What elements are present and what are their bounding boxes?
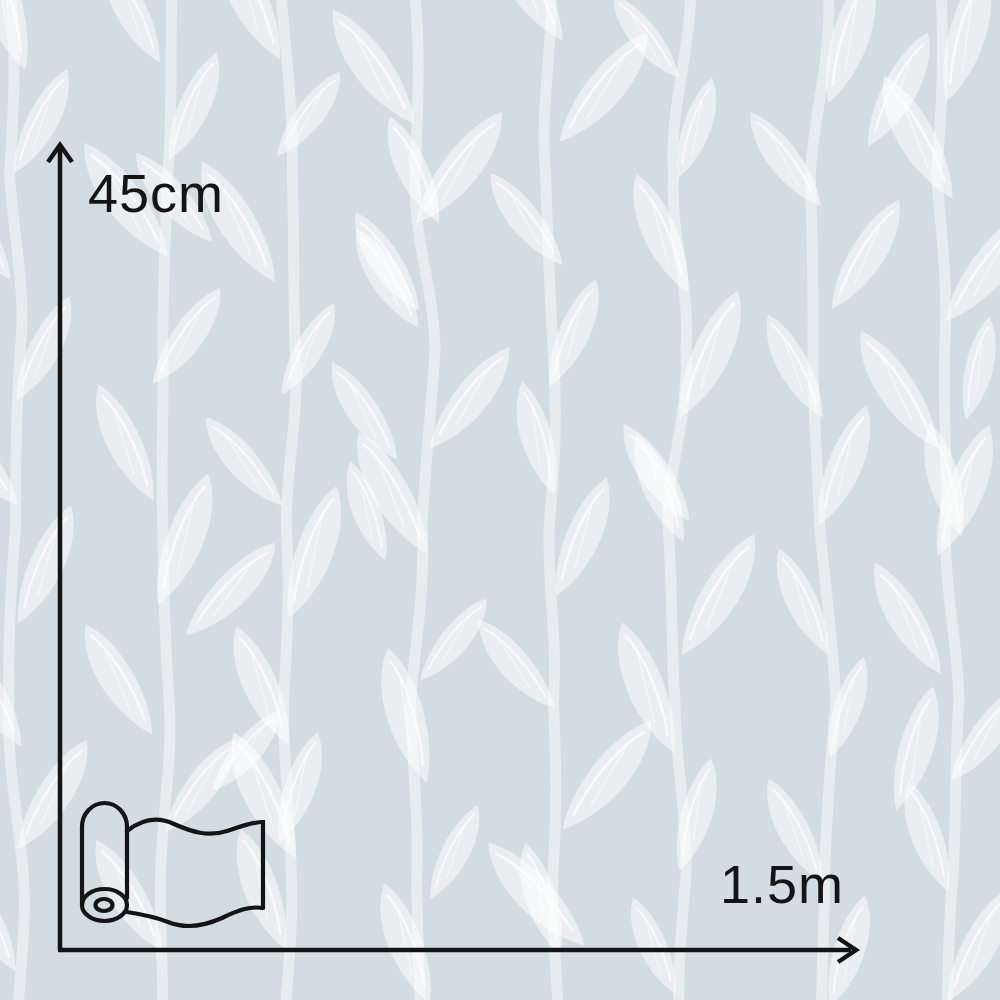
product-dimension-image: 45cm 1.5m: [0, 0, 1000, 1000]
right-arrow-icon: [58, 938, 856, 962]
up-arrow-icon: [48, 145, 72, 950]
dimension-annotations: [0, 0, 1000, 1000]
height-label: 45cm: [88, 166, 224, 220]
wallpaper-roll-icon: [82, 803, 263, 926]
width-label: 1.5m: [720, 857, 844, 911]
